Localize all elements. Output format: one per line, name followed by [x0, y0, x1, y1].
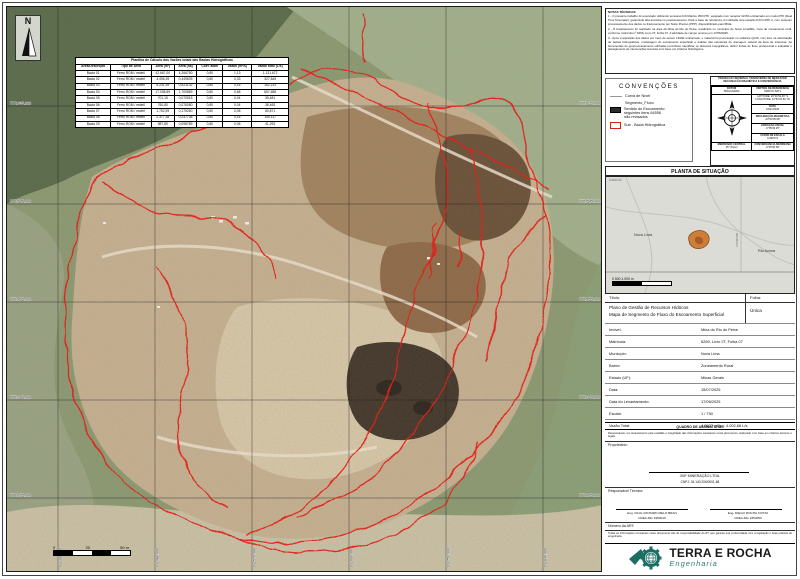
svg-text:612750.000: 612750.000 — [447, 548, 451, 567]
eng1-signature-line — [616, 509, 688, 510]
declination-value: -23°03'35,08" — [765, 118, 781, 121]
situation-map-title: PLANTA DE SITUAÇÃO — [605, 166, 795, 176]
compass-rose-icon — [715, 96, 749, 140]
eng1-name: Eng. RAUL RICHARD MELO BRAN — [606, 511, 698, 515]
svg-text:612480.000: 612480.000 — [156, 548, 160, 567]
logo-subtitle: Engenharia — [669, 559, 771, 568]
eng1-crea: CREA-MG 1950010 — [606, 516, 698, 520]
map-sheet: 7771635.0007771635.0007771545.0007771545… — [0, 0, 800, 579]
inset-coord-line: 7771500.000 — [736, 233, 739, 247]
inset-city2-label: Rio Acima — [758, 249, 775, 253]
side-panel: NOTAS TÉCNICAS: 1 - O presente trabalho … — [604, 6, 796, 572]
map-scale-bar: 0 25 50 m — [53, 545, 143, 556]
inset-scale-bar: 0 500 1.000 m — [612, 277, 672, 286]
technical-notes-list: 1 - O presente trabalho foi executado ut… — [608, 15, 792, 52]
svg-text:7771545.000: 7771545.000 — [10, 200, 31, 204]
annual-variation-value: -0°05'29,25" — [766, 127, 780, 130]
legend-box: CONVENÇÕES Curva de Nível Segmento_Fluxo… — [605, 78, 693, 162]
central-meridian-value: 45° W(Gr) — [726, 146, 738, 149]
convergence-value: -0°03'30,68" — [766, 146, 780, 149]
legend-basin-label: Sub - Bacia Hidrográfica — [624, 123, 665, 127]
title-label: Título: — [609, 295, 620, 300]
legend-title: CONVENÇÕES — [610, 83, 688, 90]
svg-text:7771455.000: 7771455.000 — [10, 298, 31, 302]
basin-boundary-icon — [610, 122, 621, 129]
technical-notes-box: NOTAS TÉCNICAS: 1 - O presente trabalho … — [605, 8, 795, 74]
title-block-rows: Imóvel: Mina do Rio do Peixe Matrícula: … — [605, 323, 795, 431]
legend-contour-label: Curva de Nível — [625, 94, 650, 98]
map-title-line2: Mapa de Segmento do Fluxo do Escoamento … — [609, 312, 744, 319]
north-label: N — [16, 16, 40, 26]
svg-text:7771545.000: 7771545.000 — [579, 200, 600, 204]
flow-table-body: Bacia 01Ferro ROM / estéril 42.667,004,2… — [76, 70, 289, 127]
title-block-row: Município: Nova Lima — [605, 347, 795, 359]
svg-text:612660.000: 612660.000 — [350, 548, 354, 567]
eng2-name: Eng. DIEGO ROCHA COSTA — [702, 511, 794, 515]
svg-text:7771365.000: 7771365.000 — [10, 396, 31, 400]
datum-value: SIRGAS2000 — [724, 90, 740, 93]
title-block-row: Estado (UF): Minas Gerais — [605, 371, 795, 383]
flow-table-row: Bacia 09Ferro ROM / estéril 987,890,0987… — [76, 121, 289, 127]
eng2-crea: CREA-MG 2354050 — [702, 516, 794, 520]
inset-city-label: Nova Lima — [634, 233, 652, 237]
scale-tick-0: 0 — [53, 545, 55, 550]
owner-signature-line — [649, 472, 749, 473]
title-block-row: Data: 15/07/2025 — [605, 383, 795, 395]
signatures-header: QUADRO DE ASSINATURAS — [605, 422, 795, 430]
svg-text:7771635.000: 7771635.000 — [579, 102, 600, 106]
owner-cnpj: CNPJ: 34.140.206/0001-68 — [605, 480, 795, 484]
map-title: Plano de Gestão de Recursos Hídricos Map… — [609, 305, 744, 319]
scale-factor-value: 0,999774 — [767, 137, 778, 140]
flow-calc-table: Planilha de Cálculo das Vazões totais da… — [75, 57, 289, 128]
vertex-value: MARCO-SAT1 — [764, 90, 781, 93]
svg-text:7771275.000: 7771275.000 — [10, 494, 31, 498]
sheet-label: Folha: — [750, 295, 761, 300]
art-label: Número da ART: — [605, 522, 795, 529]
title-block-row: Escala: 1 / 750 — [605, 407, 795, 419]
logo-name: TERRA E ROCHA — [669, 548, 771, 559]
title-block-header: Título: Folha: Única — [605, 294, 795, 303]
map-title-line1: Plano de Gestão de Recursos Hídricos — [609, 305, 744, 312]
gear-globe-logo-icon — [628, 545, 664, 571]
svg-text:7771455.000: 7771455.000 — [579, 298, 600, 302]
title-block-row: Data do Levantamento: 17/06/2025 — [605, 395, 795, 407]
technical-note: 2 - O levantamento foi realizado na área… — [608, 28, 792, 35]
svg-text:7771365.000: 7771365.000 — [579, 396, 600, 400]
flow-direction-icon — [610, 107, 621, 113]
legend-group-label: Segmento_Fluxo — [625, 101, 654, 105]
tech-label: Responsável Técnico: — [605, 487, 795, 494]
owner-name: JMF MINERAÇÃO LTDA. — [605, 474, 795, 478]
technical-note: 1 - O presente trabalho foi executado ut… — [608, 15, 792, 26]
title-block-divider — [745, 294, 746, 324]
technical-note: 3 - Após a aquisição dos dados por meio … — [608, 37, 792, 52]
projection-box: PROJEÇÃO UNIVERSAL TRANSVERSA DE MERCATO… — [710, 76, 795, 166]
contour-line-icon — [610, 96, 622, 97]
rt-disclaimer: Todas as informações constantes neste do… — [605, 530, 795, 540]
projection-header-2: DECLINAÇÃO MAGNÉTICA E CONVERGÊNCIA — [712, 81, 793, 84]
svg-text:612570.000: 612570.000 — [253, 548, 257, 567]
legend-flow-label: Sentido do Escoamento: seguintes itens 8… — [624, 107, 665, 119]
company-logo: TERRA E ROCHA Engenharia — [605, 543, 795, 572]
north-arrow-glyph — [16, 26, 42, 60]
sheet-value: Única — [750, 308, 762, 313]
owner-label: Proprietário: — [605, 441, 795, 448]
title-block-row: Matrícula: 6269, Livro 2T, Folha 07 — [605, 335, 795, 347]
eng2-signature-line — [710, 509, 782, 510]
scale-tick-50: 50 m — [120, 545, 129, 550]
scale-tick-25: 25 — [85, 545, 89, 550]
svg-text:7771635.000: 7771635.000 — [10, 102, 31, 106]
longitude-value: LONGITUDE: 43°51'10,81" W — [755, 98, 789, 101]
north-arrow-icon: N — [15, 15, 41, 61]
inset-coord-top: 612500.000 — [609, 179, 622, 182]
title-block-row: Imóvel: Mina do Rio do Peixe — [605, 323, 795, 335]
svg-text:612840.000: 612840.000 — [544, 548, 548, 567]
situation-map: 612500.000 7771500.000 Nova Lima Rio Aci… — [605, 176, 795, 294]
svg-text:7771275.000: 7771275.000 — [579, 494, 600, 498]
map-area: 7771635.0007771635.0007771545.0007771545… — [6, 6, 602, 572]
title-block-row: Bairro: Zoneamento Rural — [605, 359, 795, 371]
responsibility-note: Responsáveis: em levantamento pela exati… — [605, 431, 795, 440]
proj-date-value: 15/07/2025 — [766, 108, 779, 111]
